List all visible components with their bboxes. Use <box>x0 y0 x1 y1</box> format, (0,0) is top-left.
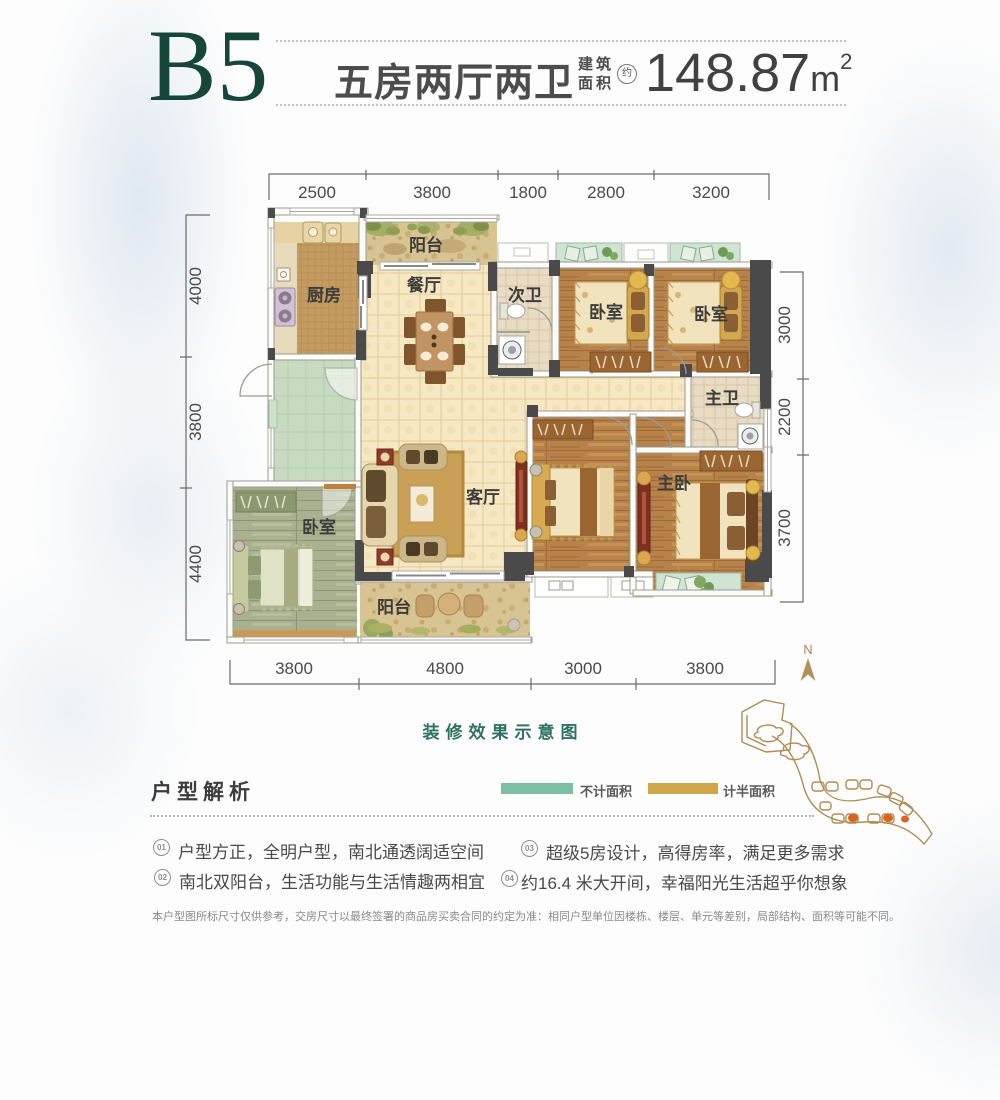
svg-text:主卫: 主卫 <box>705 388 739 408</box>
svg-text:3800: 3800 <box>275 659 313 678</box>
svg-text:卧室: 卧室 <box>589 302 623 322</box>
svg-text:2200: 2200 <box>775 398 794 436</box>
svg-text:3200: 3200 <box>692 183 730 202</box>
svg-text:3800: 3800 <box>186 403 205 441</box>
svg-text:3000: 3000 <box>775 306 794 344</box>
svg-text:2500: 2500 <box>298 183 336 202</box>
svg-text:3000: 3000 <box>564 659 602 678</box>
svg-text:3800: 3800 <box>686 659 724 678</box>
svg-text:3800: 3800 <box>413 183 451 202</box>
svg-text:3700: 3700 <box>775 509 794 547</box>
svg-text:4000: 4000 <box>186 267 205 305</box>
svg-text:厨房: 厨房 <box>307 285 341 305</box>
svg-text:主卧: 主卧 <box>657 473 691 493</box>
svg-text:卧室: 卧室 <box>302 517 336 537</box>
svg-text:4400: 4400 <box>186 545 205 583</box>
svg-text:阳台: 阳台 <box>377 597 411 617</box>
svg-text:餐厅: 餐厅 <box>407 275 441 295</box>
svg-text:卧室: 卧室 <box>694 304 728 324</box>
svg-text:1800: 1800 <box>509 183 547 202</box>
svg-text:阳台: 阳台 <box>409 235 443 255</box>
svg-text:2800: 2800 <box>587 183 625 202</box>
svg-text:客厅: 客厅 <box>465 487 500 507</box>
svg-text:次卫: 次卫 <box>508 285 542 305</box>
svg-text:N: N <box>803 642 812 657</box>
svg-text:4800: 4800 <box>426 659 464 678</box>
